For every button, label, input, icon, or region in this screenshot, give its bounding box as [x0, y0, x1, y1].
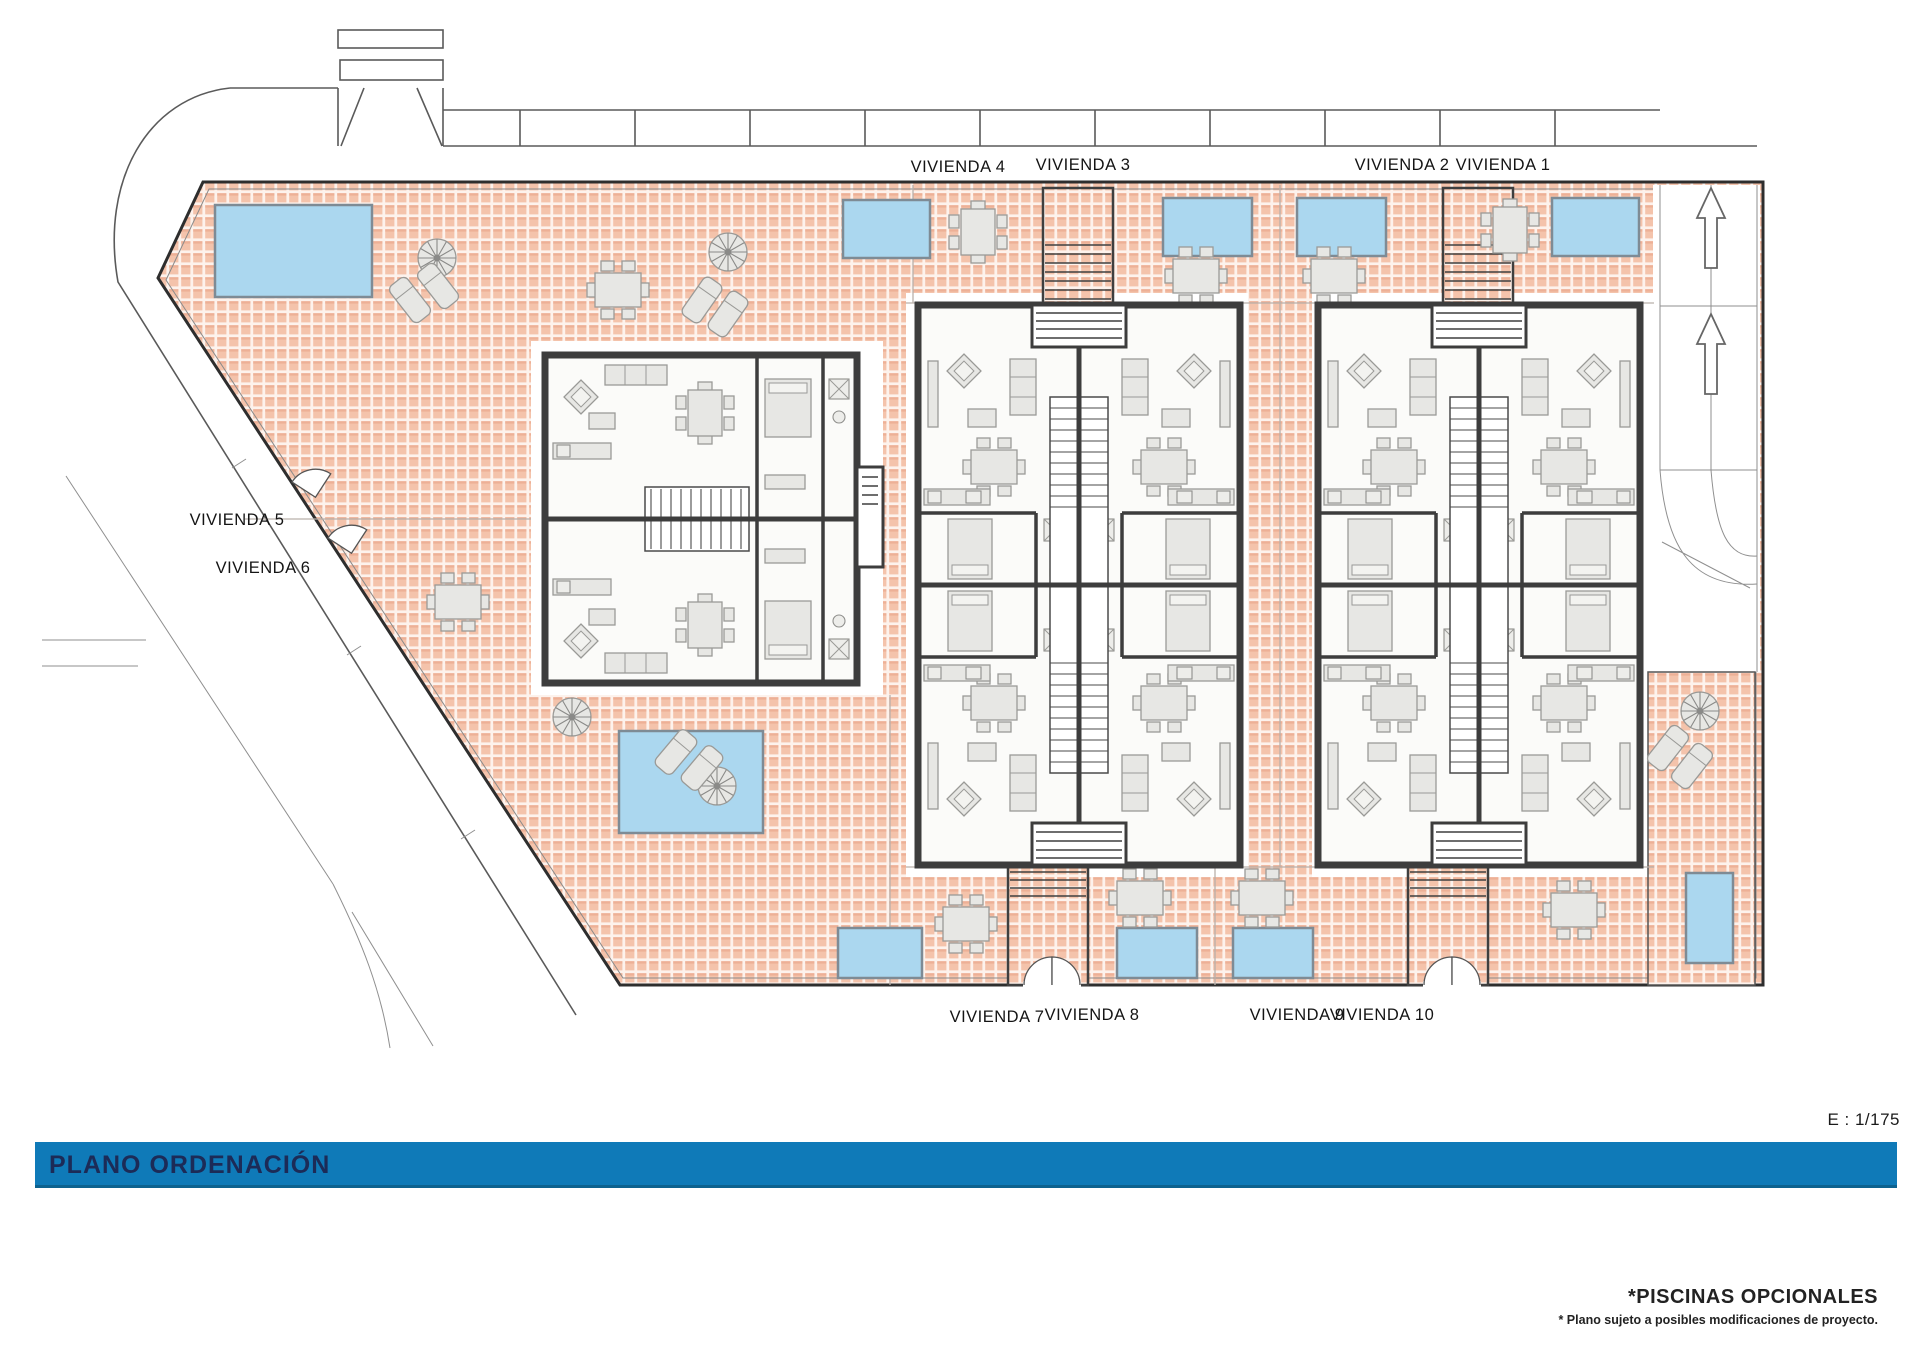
building-viviendas-2-1-9-10 [1318, 305, 1640, 865]
label-vivienda-8: VIVIENDA 8 [1045, 1006, 1140, 1024]
label-vivienda-6: VIVIENDA 6 [216, 559, 311, 577]
pool-vivienda-4 [843, 200, 930, 258]
label-vivienda-4: VIVIENDA 4 [911, 158, 1006, 176]
building-viviendas-5-6 [545, 355, 883, 683]
label-vivienda-10: VIVIENDA 10 [1330, 1006, 1435, 1024]
label-vivienda-3: VIVIENDA 3 [1036, 156, 1131, 174]
pool-vivienda-9 [1233, 928, 1313, 978]
label-vivienda-1: VIVIENDA 1 [1456, 156, 1551, 174]
pool-vivienda-10 [1686, 873, 1733, 963]
pool-vivienda-7 [838, 928, 922, 978]
title-bar: PLANO ORDENACIÓN [35, 1142, 1897, 1188]
pool-vivienda-1 [1552, 198, 1639, 256]
pool-vivienda-5 [215, 205, 372, 297]
footnote-disclaimer: * Plano sujeto a posibles modificaciones… [1558, 1313, 1878, 1327]
pool-vivienda-8 [1117, 928, 1197, 978]
label-vivienda-2: VIVIENDA 2 [1355, 156, 1450, 174]
building-viviendas-4-3-7-8 [918, 305, 1240, 865]
label-vivienda-7: VIVIENDA 7 [950, 1008, 1045, 1026]
footnote-pools: *PISCINAS OPCIONALES [1628, 1286, 1878, 1309]
label-vivienda-5: VIVIENDA 5 [190, 511, 285, 529]
scale-label: E : 1/175 [1827, 1110, 1900, 1130]
sheet-title: PLANO ORDENACIÓN [35, 1142, 1897, 1180]
site-plan-sheet: VIVIENDA 4 VIVIENDA 3 VIVIENDA 2 VIVIEND… [0, 0, 1920, 1366]
